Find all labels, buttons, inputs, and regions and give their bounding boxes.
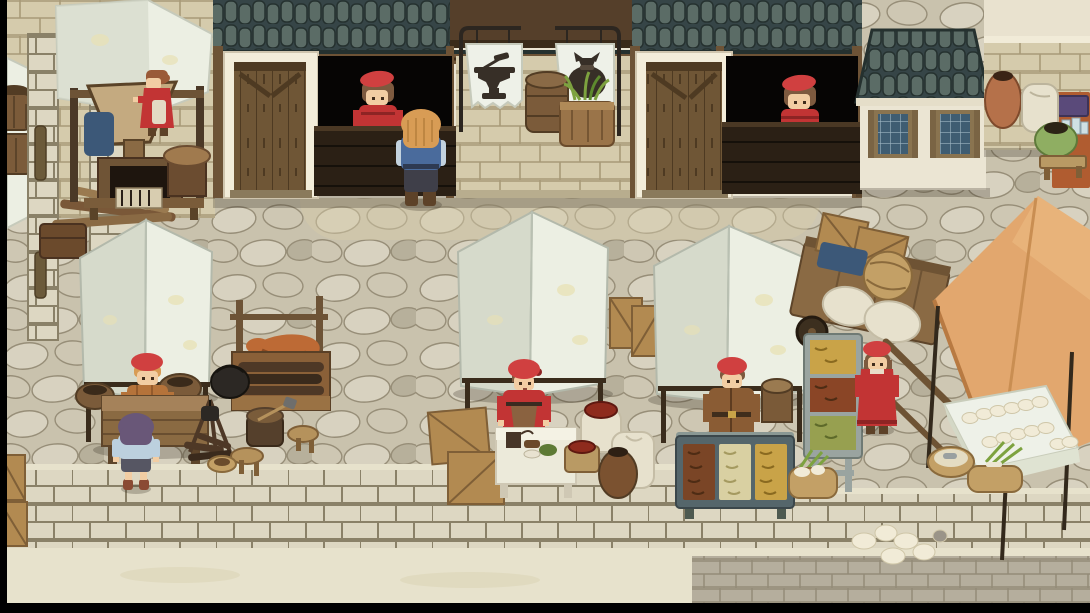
green-fruit <box>539 444 557 456</box>
rack-tray-red <box>810 378 856 412</box>
spice-bucket <box>565 441 599 472</box>
house-window-left <box>868 110 918 158</box>
clay-urn <box>985 71 1021 128</box>
wood-stump <box>762 379 792 422</box>
dish <box>524 450 540 458</box>
right-house <box>856 30 990 197</box>
wooden-chest <box>40 224 86 258</box>
left-door[interactable] <box>224 52 318 198</box>
shingle-roof-right <box>632 0 862 52</box>
black-kettle <box>211 366 249 398</box>
green-pot <box>1035 122 1077 157</box>
house-roof <box>856 30 990 102</box>
small-basket <box>208 456 236 472</box>
tool-grate <box>116 188 162 208</box>
fish-display-case[interactable] <box>676 432 794 519</box>
letterbox-left <box>0 0 7 613</box>
shop-counter[interactable] <box>722 122 862 194</box>
rack-tray-gold <box>810 340 856 374</box>
main-building <box>213 0 862 208</box>
round-basket-fish <box>928 447 974 477</box>
kettle <box>201 406 219 421</box>
game-viewport[interactable]: Hand-painted pixel-art RPG market square… <box>0 0 1090 613</box>
purple-box <box>1058 96 1088 116</box>
letterbox-bottom <box>0 603 1090 613</box>
stone-pillar-left <box>28 34 58 340</box>
house-window-right <box>930 110 980 158</box>
right-door[interactable] <box>636 52 732 198</box>
right-shop-window[interactable] <box>722 56 862 194</box>
brown-goods <box>524 440 540 448</box>
stump-table <box>164 146 210 196</box>
plant-bucket <box>560 72 614 146</box>
grinder <box>506 432 521 448</box>
rack-tray-green <box>810 416 856 450</box>
shingle-roof-left <box>213 0 450 52</box>
